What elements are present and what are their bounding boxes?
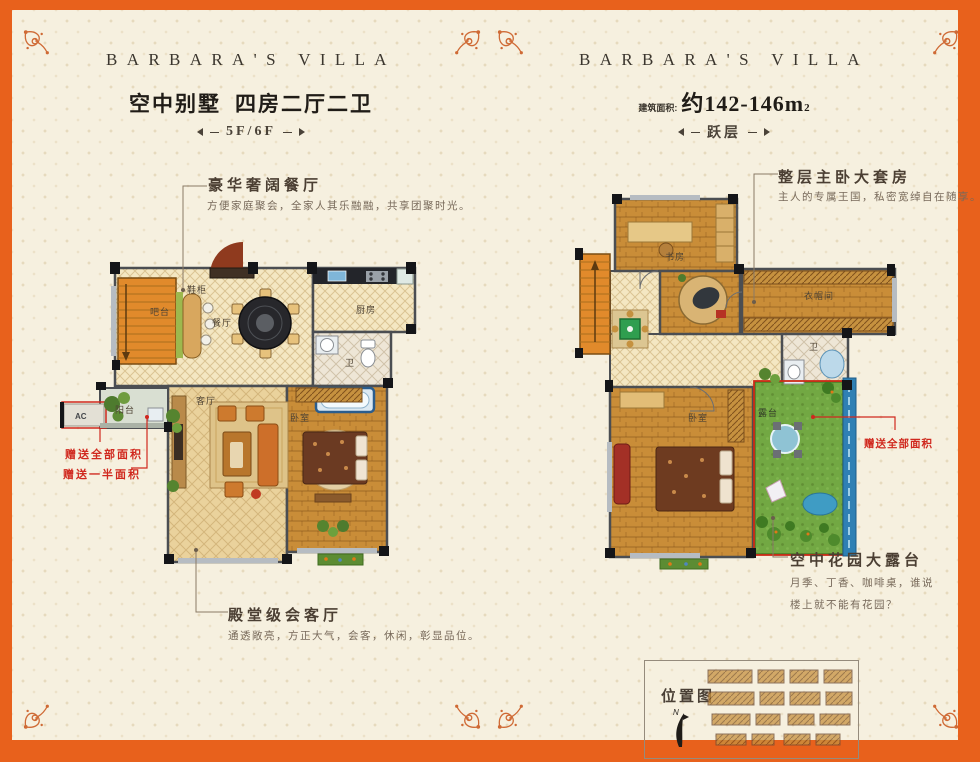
wardrobe [296,388,362,402]
bookcase [716,204,734,262]
pillow [356,436,367,456]
stove [366,271,388,282]
label-balcony: 阳台 [115,404,135,415]
bed-bench [315,494,351,502]
arrow-left-icon [678,128,684,136]
area-line: 建筑面积: 约142-146m 2 [490,86,958,118]
right-floor-tag: 跃层 [490,122,958,142]
wardrobe [744,271,893,284]
kitchen-counter [313,268,413,284]
armchair [218,406,236,421]
side-table [251,489,261,499]
dash [748,132,757,133]
callout-terrace-title: 空中花园大露台 [790,549,923,570]
sink [328,271,346,281]
window [607,442,612,512]
chaise [614,444,630,504]
callout-dining-title: 豪华奢阔餐厅 [208,174,322,195]
pillow [356,460,367,480]
dash [210,132,219,133]
ornament-bottom-mid-right [496,704,526,731]
arrow-left-icon [197,128,203,136]
label-bath: 卫 [345,358,355,368]
area-value: 约142-146m [681,86,804,118]
wash-basin [148,408,163,421]
label-cloakroom: 衣帽间 [804,290,834,301]
callout-master-title: 整层主卧大套房 [778,166,911,187]
plant [678,274,686,282]
label-bedroom: 卧室 [290,412,310,423]
left-title-sub: 四房二厅二卫 [235,93,373,116]
brochure-frame: BARBARA'S VILLA 空中别墅四房二厅二卫 5F/6F BARBARA… [0,0,980,762]
dresser [620,392,664,408]
right-floor-tag-text: 跃层 [707,122,741,142]
left-page-title: 空中别墅四房二厅二卫 [12,88,490,118]
dash [691,132,700,133]
basin [321,339,334,352]
ornament-bottom-right [930,704,960,731]
label-ac: AC [75,412,87,421]
callout-terrace-desc2: 楼上就不能有花园？ [790,597,898,612]
wardrobe [744,318,893,331]
sofa [258,424,278,486]
compass-icon: N [665,705,695,749]
armchair [246,406,264,421]
callout-dining-desc: 方便家庭聚会，全家人其乐融融，共享团聚时光。 [207,198,471,213]
armchair [225,482,243,497]
label-study: 书房 [665,251,685,262]
label-terrace: 露台 [758,407,778,418]
location-map-box: 位置图 N [644,660,859,759]
site-plan-buildings [707,666,853,752]
staircase-up [580,254,610,354]
pool [803,493,837,515]
ornament-bottom-left [22,704,52,731]
basin [788,365,800,379]
label-bar: 吧台 [150,306,170,317]
dash [283,132,292,133]
shower [820,350,844,378]
area-label: 建筑面积: [638,101,677,114]
wardrobe [728,390,744,442]
label-dining: 餐厅 [212,317,232,328]
desk [628,222,692,242]
shoe-cabinet [210,268,254,278]
left-header: BARBARA'S VILLA 空中别墅四房二厅二卫 5F/6F [12,50,490,140]
right-header: BARBARA'S VILLA 建筑面积: 约142-146m 2 跃层 [490,50,958,142]
brand-right: BARBARA'S VILLA [490,50,958,70]
brochure-paper: BARBARA'S VILLA 空中别墅四房二厅二卫 5F/6F BARBARA… [12,10,958,740]
window [892,278,897,322]
toilet [361,349,375,367]
callout-living-title: 殿堂级会客厅 [228,604,342,625]
window [178,558,278,563]
arrow-right-icon [299,128,305,136]
label-bedroom: 卧室 [688,412,708,423]
callout-master-desc: 主人的专属王国，私密宽绰自在随享。 [778,189,980,204]
gift-half-left: 赠送一半面积 [63,466,141,482]
left-floorplan: 鞋柜 吧台 餐厅 厨房 卫 客厅 卧室 阳台 AC [60,256,440,568]
mahjong-table [612,310,649,348]
area-sup: 2 [804,102,810,114]
left-title-main: 空中别墅 [129,93,221,116]
arrow-right-icon [764,128,770,136]
callout-terrace-desc1: 月季、丁香、咖啡桌，谁说 [790,575,934,590]
plant [759,368,771,380]
brand-left: BARBARA'S VILLA [12,50,490,70]
left-floor-tag: 5F/6F [12,124,490,140]
window [297,548,377,553]
window [630,195,700,200]
label-bath: 卫 [809,342,819,352]
left-floor-tag-text: 5F/6F [226,124,276,140]
gift-full-left: 赠送全部面积 [65,446,143,462]
staircase-down [118,278,176,364]
gift-full-right: 赠送全部面积 [864,436,933,451]
label-shoe-cabinet: 鞋柜 [187,284,207,295]
ornament-bottom-mid-left [452,704,482,731]
balcony-rail [100,423,168,428]
pillow [720,451,732,475]
window [630,553,700,558]
label-living: 客厅 [196,395,216,406]
callout-living-desc: 通透敞亮，方正大气，会客，休闲，彰显品位。 [228,628,480,643]
plant [770,374,780,384]
right-floorplan: 书房 衣帽间 卫 卧室 露台 [570,192,900,572]
compass-n-label: N [673,708,679,717]
pillow [720,479,732,503]
label-kitchen: 厨房 [356,304,376,315]
window [111,286,116,356]
